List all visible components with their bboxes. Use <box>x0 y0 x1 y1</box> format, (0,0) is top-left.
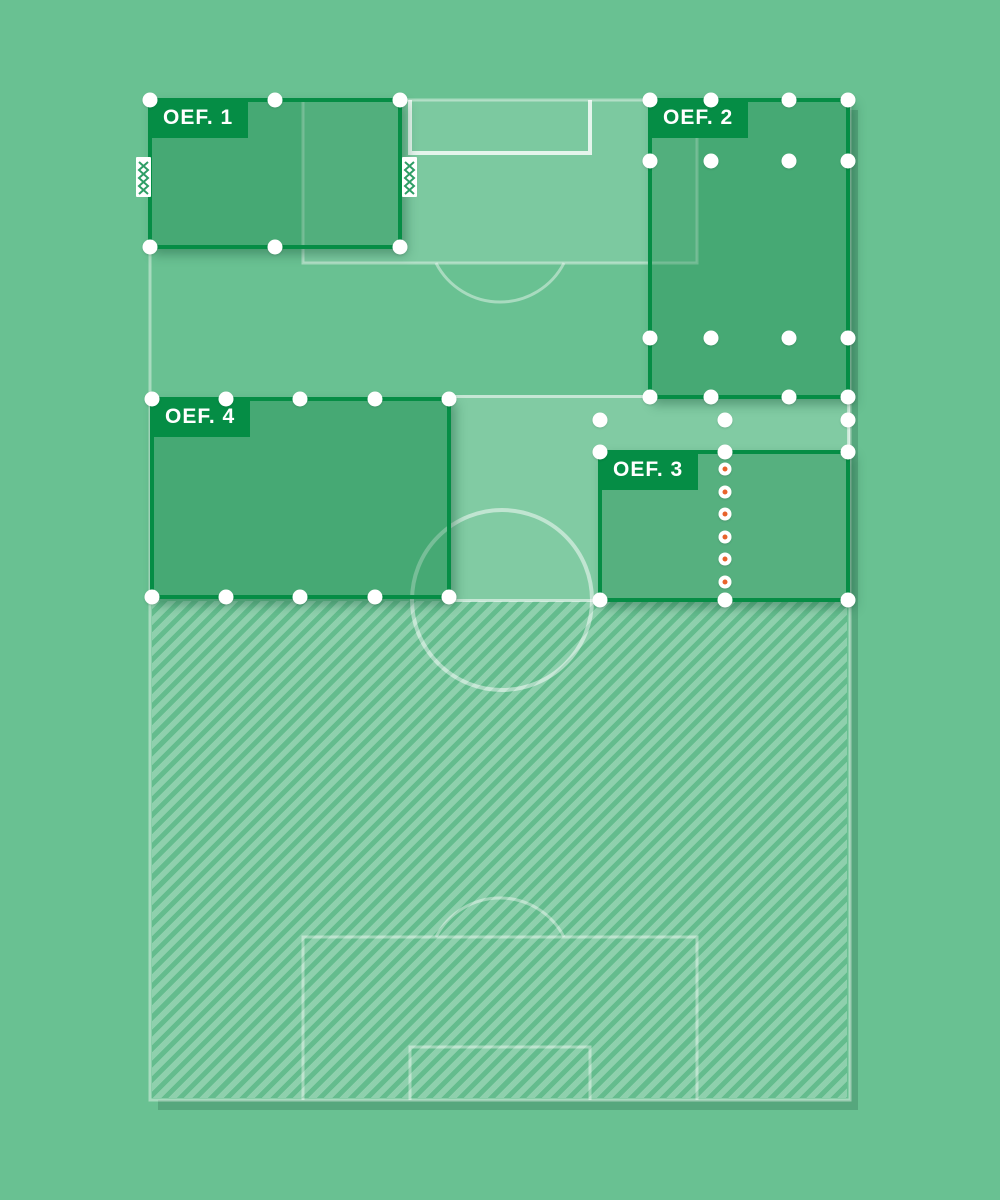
resize-handle[interactable] <box>704 331 719 346</box>
resize-handle[interactable] <box>704 154 719 169</box>
zone-2[interactable]: OEF. 2 <box>648 98 850 399</box>
resize-handle[interactable] <box>293 590 308 605</box>
goal-icon[interactable] <box>402 157 417 197</box>
resize-handle[interactable] <box>704 390 719 405</box>
zone-4[interactable]: OEF. 4 <box>150 397 451 599</box>
resize-handle[interactable] <box>219 392 234 407</box>
resize-handle[interactable] <box>393 240 408 255</box>
resize-handle[interactable] <box>593 445 608 460</box>
resize-handle[interactable] <box>718 445 733 460</box>
resize-handle[interactable] <box>782 331 797 346</box>
zone-label-badge: OEF. 3 <box>598 450 698 490</box>
resize-handle[interactable] <box>718 593 733 608</box>
hatched-half-overlay <box>152 601 847 1098</box>
zone-label-badge: OEF. 1 <box>148 98 248 138</box>
resize-handle[interactable] <box>841 93 856 108</box>
resize-handle[interactable] <box>643 93 658 108</box>
resize-handle[interactable] <box>293 392 308 407</box>
zone-label-badge: OEF. 2 <box>648 98 748 138</box>
resize-handle[interactable] <box>841 390 856 405</box>
resize-handle[interactable] <box>145 590 160 605</box>
resize-handle[interactable] <box>143 93 158 108</box>
waypoint-core <box>723 535 728 540</box>
goal-icon[interactable] <box>136 157 151 197</box>
resize-handle[interactable] <box>782 154 797 169</box>
resize-handle[interactable] <box>368 590 383 605</box>
resize-handle[interactable] <box>643 331 658 346</box>
resize-handle[interactable] <box>841 445 856 460</box>
waypoint-core <box>723 557 728 562</box>
waypoint-core <box>723 490 728 495</box>
resize-handle[interactable] <box>643 390 658 405</box>
waypoint-dot[interactable] <box>719 553 732 566</box>
resize-handle[interactable] <box>593 413 608 428</box>
resize-handle[interactable] <box>643 154 658 169</box>
resize-handle[interactable] <box>593 593 608 608</box>
waypoint-dot[interactable] <box>719 508 732 521</box>
waypoint-dot[interactable] <box>719 531 732 544</box>
resize-handle[interactable] <box>442 590 457 605</box>
resize-handle[interactable] <box>368 392 383 407</box>
waypoint-dot[interactable] <box>719 486 732 499</box>
resize-handle[interactable] <box>841 413 856 428</box>
waypoint-core <box>723 512 728 517</box>
resize-handle[interactable] <box>145 392 160 407</box>
waypoint-core <box>723 580 728 585</box>
resize-handle[interactable] <box>704 93 719 108</box>
resize-handle[interactable] <box>143 240 158 255</box>
resize-handle[interactable] <box>393 93 408 108</box>
resize-handle[interactable] <box>782 93 797 108</box>
resize-handle[interactable] <box>268 240 283 255</box>
waypoint-dot[interactable] <box>719 576 732 589</box>
zone-1[interactable]: OEF. 1 <box>148 98 402 249</box>
resize-handle[interactable] <box>782 390 797 405</box>
resize-handle[interactable] <box>718 413 733 428</box>
resize-handle[interactable] <box>268 93 283 108</box>
pitch-canvas: OEF. 1OEF. 2OEF. 3OEF. 4 <box>0 0 1000 1200</box>
waypoint-core <box>723 467 728 472</box>
resize-handle[interactable] <box>219 590 234 605</box>
resize-handle[interactable] <box>841 154 856 169</box>
resize-handle[interactable] <box>841 593 856 608</box>
waypoint-dot[interactable] <box>719 463 732 476</box>
resize-handle[interactable] <box>841 331 856 346</box>
zone-label-badge: OEF. 4 <box>150 397 250 437</box>
resize-handle[interactable] <box>442 392 457 407</box>
